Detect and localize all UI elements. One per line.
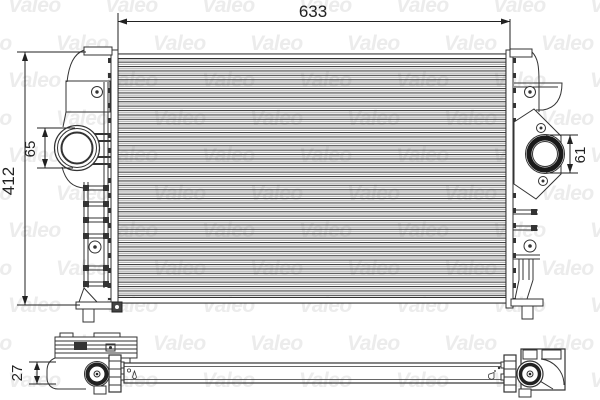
right-port-inner bbox=[533, 142, 558, 167]
core-bottom-header bbox=[119, 298, 506, 303]
left-mounting-ear bbox=[66, 81, 110, 112]
core-side-plate-left bbox=[111, 50, 118, 308]
bleed-symbol-left bbox=[127, 369, 136, 379]
left-ladder-rungs bbox=[83, 185, 109, 287]
right-foot-peg bbox=[522, 306, 533, 319]
front-view: 633 412 65 bbox=[0, 2, 589, 322]
dim-core-width-label: 633 bbox=[299, 2, 327, 21]
intercooler-drawing: 633 412 65 bbox=[0, 0, 600, 400]
dim-overall-height-label: 412 bbox=[0, 167, 18, 195]
dim-right-port-label: 61 bbox=[572, 147, 589, 164]
technical-drawing-page: ValeoValeoValeoValeoValeoValeoValeoValeo… bbox=[0, 0, 600, 400]
dim-left-port-label: 65 bbox=[22, 141, 39, 158]
dimension-core-depth bbox=[29, 362, 56, 384]
dimension-overall-height bbox=[17, 52, 86, 305]
dim-core-depth-label: 27 bbox=[9, 365, 26, 382]
core-side-plate-right bbox=[506, 50, 513, 308]
side-tube bbox=[124, 363, 504, 383]
left-port-inner bbox=[62, 133, 93, 164]
bleed-symbol-right bbox=[488, 367, 500, 379]
right-tank bbox=[510, 49, 565, 319]
core-top-header bbox=[119, 55, 506, 59]
left-foot-peg bbox=[83, 309, 94, 322]
intercooler-core bbox=[118, 54, 506, 303]
side-left-tank-stack bbox=[55, 337, 137, 358]
side-view: 27 bbox=[9, 333, 565, 397]
